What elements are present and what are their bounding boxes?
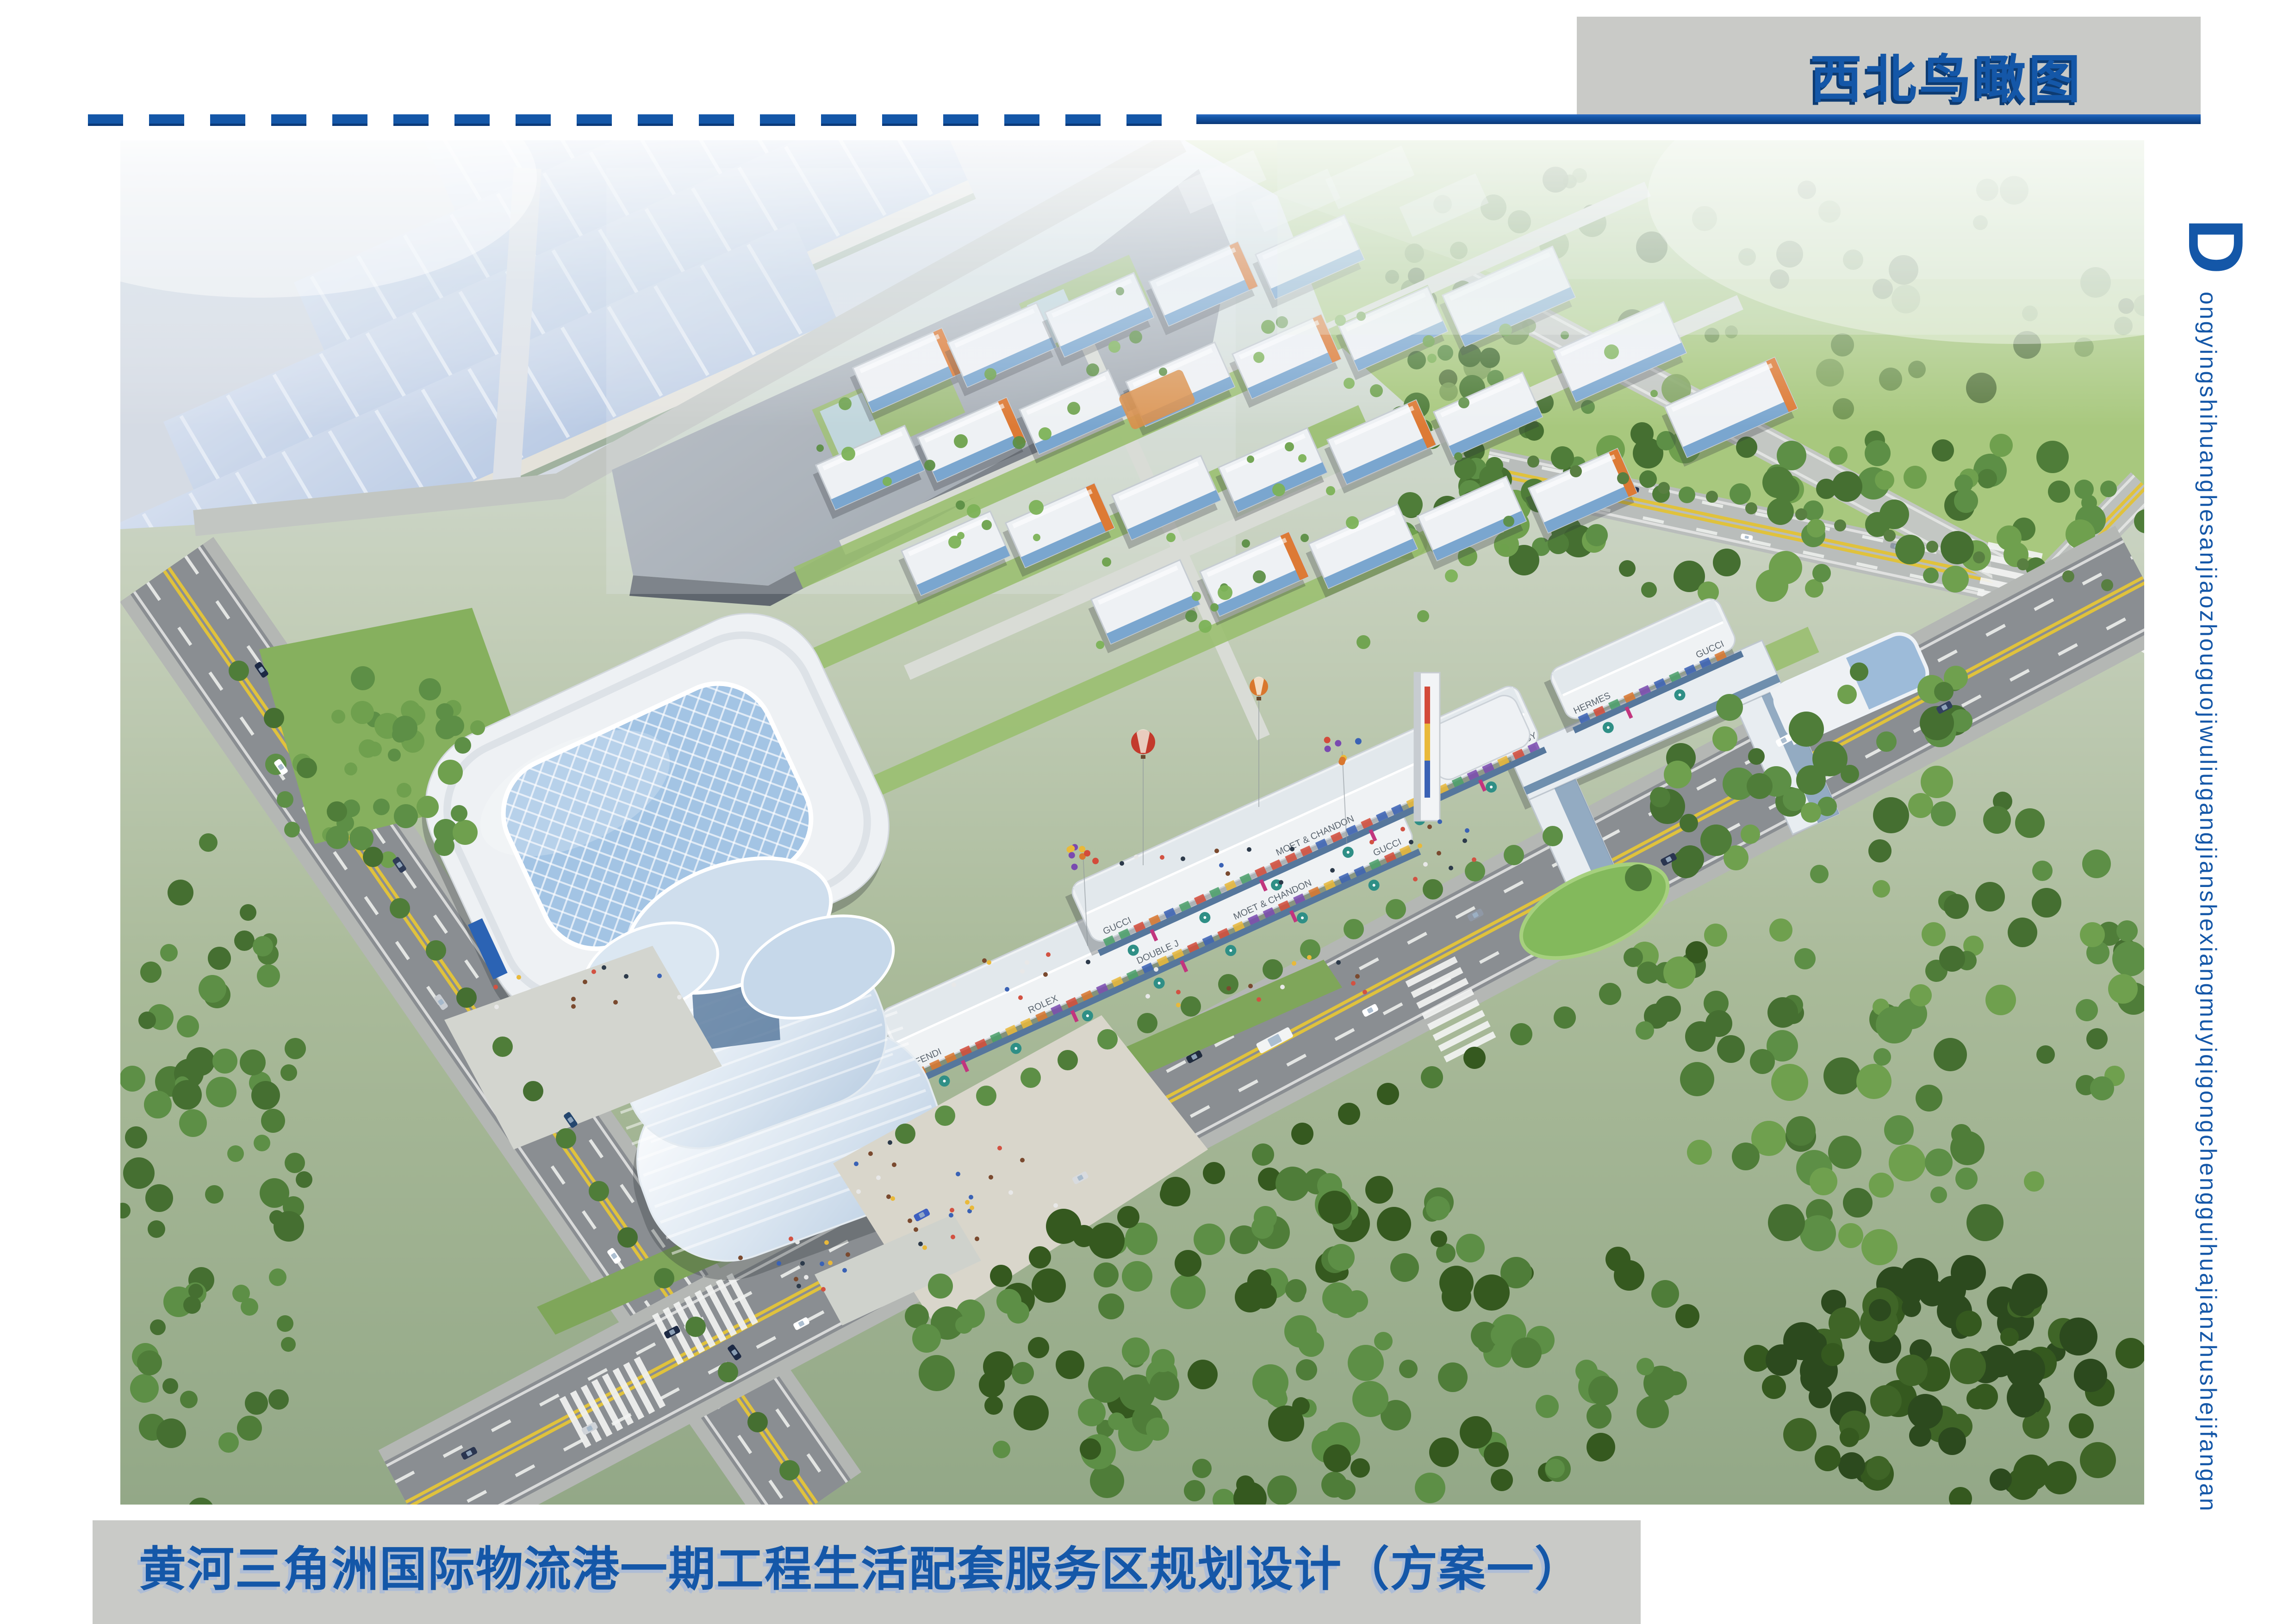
campus-trees-part [1166, 533, 1176, 542]
trees-left-edge-part [281, 1337, 296, 1352]
forest-bottom-right-part [2069, 1413, 2094, 1438]
trees-left-edge-part [251, 1081, 280, 1110]
forest-right-part [1868, 839, 1892, 862]
people-plaza-part [886, 1194, 891, 1199]
forest-bottom-right-part [1900, 1258, 1938, 1296]
forest-right-part [1700, 824, 1732, 856]
people-strip-b-part [1413, 877, 1418, 881]
forest-bottom-center-part [996, 1289, 1021, 1314]
trees-left-edge-part [206, 1077, 236, 1107]
forest-bottom-right-part [1840, 1428, 1859, 1447]
trees-west-lawn-part [349, 826, 373, 850]
forest-bottom-center-part [955, 1316, 973, 1334]
campus-trees-part [1454, 452, 1462, 461]
campus-trees-part [982, 520, 992, 530]
trees-left-edge-part [205, 1185, 224, 1204]
park-tree-band-part [1619, 560, 1636, 577]
forest-bottom-center-part [1323, 1444, 1351, 1472]
street-ne-median-part [1973, 551, 1985, 563]
forest-bottom-right-part [1869, 1299, 1891, 1321]
forest-bottom-center-part [1491, 1469, 1513, 1491]
road-main-trees-s-part [1073, 1225, 1095, 1247]
people-landmark1-part [516, 975, 521, 980]
road-main-trees-n-part [1465, 861, 1485, 881]
people-strip-a-part [1280, 985, 1285, 989]
forest-right-part [1850, 662, 1868, 681]
campus-trees-part [956, 500, 965, 510]
people-landmark1-part [583, 980, 587, 984]
forest-right-part [2032, 888, 2061, 918]
road-west-trees-part [718, 1362, 738, 1382]
park-tree-band-part [2100, 481, 2117, 497]
people-strip-a-part [1043, 972, 1048, 977]
park-tree-band-part [1730, 483, 1751, 505]
forest-bottom-center-part [1636, 1358, 1654, 1375]
people-landmark2-part [738, 1255, 743, 1260]
forest-bottom-center-part [1028, 1337, 1049, 1358]
forest-bottom-center-part [1426, 1196, 1450, 1220]
forest-bottom-right-part [1972, 1384, 1998, 1410]
forest-right-part [1861, 1229, 1898, 1265]
forest-bottom-center-part [1399, 1360, 1418, 1378]
trees-left-edge-part [123, 1157, 155, 1189]
trees-left-edge-part [168, 880, 193, 906]
forest-right-part [1712, 726, 1737, 751]
forest-bottom-center-part [1348, 1345, 1384, 1381]
campus-trees-part [957, 532, 964, 539]
forest-right-part [1916, 1085, 1942, 1112]
park-tree-band-part [1762, 467, 1794, 498]
top-solid-rule [1196, 114, 2201, 124]
road-main-trees-s-part [990, 1265, 1012, 1287]
campus-trees-part [1210, 603, 1219, 612]
trees-left-edge-part [218, 1432, 239, 1453]
forest-bottom-center-part [1651, 1280, 1679, 1308]
park-tree-band-part [2081, 495, 2097, 511]
forest-bottom-center-part [1374, 1332, 1393, 1350]
forest-right-part [1922, 922, 1946, 946]
forest-right-part [1636, 1021, 1654, 1040]
view-title: 西北鸟瞰图 [1810, 37, 2083, 112]
forest-right-part [1910, 984, 1932, 1006]
people-strip-a-part [1176, 990, 1181, 994]
view-title-banner: 西北鸟瞰图 [1577, 17, 2201, 114]
forest-bottom-right-part [1908, 1394, 1943, 1429]
forest-bottom-center-part [1474, 1274, 1510, 1311]
trees-left-edge-part [277, 1315, 293, 1332]
forest-right-part [1747, 773, 1773, 799]
street-ne-median-part [1706, 491, 1718, 503]
people-strip-b-part [1369, 840, 1374, 844]
trees-west-lawn-part [417, 796, 439, 818]
balloon-cluster-part [1092, 858, 1099, 864]
forest-bottom-center-part [1377, 1207, 1411, 1241]
forest-right-part [1800, 1215, 1836, 1251]
forest-right-part [1705, 1010, 1732, 1037]
campus-trees-part [1356, 635, 1370, 649]
campus-trees-part [883, 477, 892, 486]
forest-right-part [1823, 1057, 1860, 1094]
forest-bottom-center-part [1460, 1416, 1492, 1449]
forest-bottom-center-part [1254, 1206, 1277, 1229]
people-landmark2-part [796, 1284, 801, 1288]
forest-right-part [1908, 793, 1933, 818]
park-tree-band-part [2048, 481, 2070, 503]
trees-left-edge-part [180, 1391, 198, 1408]
forest-bottom-right-part [1815, 1445, 1841, 1471]
trees-west-lawn-part [344, 762, 357, 775]
forest-bottom-right-part [1902, 1298, 1921, 1317]
people-strip-a-part [1307, 955, 1312, 960]
forest-bottom-right-part [2080, 1442, 2116, 1478]
trees-left-edge-part [199, 975, 226, 1003]
park-tree-band-part [1865, 440, 1891, 466]
people-plaza-part [1020, 1158, 1025, 1162]
forest-right-part [1769, 918, 1792, 942]
people-strip-b-part [1214, 849, 1219, 853]
people-strip-b-part [1226, 871, 1230, 876]
forest-right-part [1921, 766, 1953, 798]
people-plaza-part [856, 1189, 861, 1194]
park-tree-band-part [1990, 434, 2013, 457]
people-landmark1-part [602, 965, 606, 970]
campus-trees-part [1500, 544, 1509, 553]
park-tree-band-part [1829, 446, 1848, 465]
trees-left-edge-part [240, 904, 256, 921]
people-strip-b-part [1472, 857, 1476, 862]
forest-bottom-center-part [1328, 1244, 1355, 1271]
people-plaza-part [868, 1151, 873, 1156]
forest-bottom-center-part [1146, 1418, 1169, 1441]
campus-trees-part [1247, 456, 1254, 463]
campus-trees-part [816, 444, 824, 452]
trees-left-edge-part [144, 1091, 172, 1118]
campus-trees-part [1272, 483, 1285, 496]
people-tower-part [1437, 819, 1442, 824]
park-tree-band-part [1807, 519, 1825, 537]
people-landmark1-part [624, 974, 628, 979]
forest-bottom-right-part [1938, 1427, 1966, 1455]
forest-right-part [1837, 685, 1857, 704]
trees-west-lawn-part [351, 701, 374, 724]
forest-bottom-center-part [1184, 1480, 1205, 1501]
campus-trees-part [1199, 620, 1212, 633]
forest-bottom-center-part [1335, 1480, 1356, 1500]
forest-bottom-center-part [1285, 1279, 1307, 1300]
road-main-trees-n-part [1386, 899, 1406, 919]
forest-bottom-center-part [1014, 1395, 1049, 1430]
trees-left-edge-part [253, 936, 273, 956]
forest-right-part [2108, 974, 2138, 1004]
road-main-trees-n-part [1020, 1068, 1041, 1088]
forest-right-part [1889, 1144, 1926, 1181]
road-main-trees-s-part [1029, 1246, 1051, 1268]
forest-bottom-center-part [1012, 1362, 1034, 1384]
road-main-trees-n-part [1181, 996, 1201, 1017]
trees-west-lawn-part [392, 727, 408, 743]
park-tree-band-part [1941, 531, 1974, 564]
campus-trees-part [1285, 442, 1294, 451]
campus-trees-part [1218, 585, 1232, 600]
trees-left-edge-part [254, 1135, 270, 1151]
people-strip-b-part [1330, 868, 1335, 873]
campus-trees-part [1417, 610, 1429, 622]
road-main-trees-s-part [1291, 1123, 1313, 1145]
forest-bottom-center-part [1188, 1363, 1210, 1386]
campus-trees-part [1503, 516, 1514, 527]
forest-bottom-center-part [1438, 1362, 1468, 1392]
sign-tower [1414, 673, 1440, 821]
forest-right-part [1717, 1035, 1745, 1063]
road-west-trees-part [747, 1412, 768, 1432]
road-main-trees-s-part [1252, 1143, 1274, 1166]
forest-bottom-center-part [1484, 1442, 1509, 1467]
trees-left-edge-part [120, 1066, 145, 1092]
people-strip-a-part [1336, 960, 1341, 965]
trees-left-edge-part [130, 1374, 159, 1403]
street-ne-median-part [1617, 472, 1629, 484]
forest-bottom-center-part [1511, 1337, 1542, 1368]
forest-right-part [1741, 824, 1760, 844]
people-landmark1-part [613, 1000, 618, 1005]
forest-right-part [1672, 849, 1700, 878]
street-ne-median-part [1926, 541, 1938, 553]
aerial-rendering-svg: FENDIROLEXDOUBLE JMOET & CHANDONGUCCIGUC… [120, 140, 2144, 1505]
balloon-cluster-part [1355, 738, 1362, 744]
road-main-trees-s-part [1203, 1162, 1225, 1184]
balloon-cluster-part [1079, 846, 1085, 852]
park-tree-band-w-part [1551, 446, 1574, 469]
people-plaza-part [949, 1213, 953, 1218]
forest-right-part [1771, 1064, 1808, 1101]
forest-right-part [1939, 946, 1965, 972]
people-landmark2-part [842, 1268, 847, 1273]
road-west-trees-part [779, 1460, 800, 1480]
people-strip-b-part [1160, 855, 1164, 860]
street-ne-median-part [1570, 465, 1582, 477]
road-main-trees-s-part [1510, 1023, 1532, 1045]
park-tree-band-part [1923, 568, 1939, 583]
people-landmark1-part [677, 995, 682, 999]
people-landmark1-part [657, 974, 662, 978]
forest-right-part [1975, 882, 2005, 912]
road-main-trees-n-part [976, 1086, 996, 1106]
trees-left-edge-part [261, 1109, 285, 1133]
people-strip-a-part [1248, 984, 1253, 988]
forest-bottom-center-part [1098, 1293, 1124, 1319]
people-strip-a-part [1046, 952, 1051, 957]
forest-right-part [1748, 748, 1765, 765]
campus-trees-part [967, 504, 981, 518]
people-landmark2-part [820, 1262, 824, 1266]
street-ne-median-part [1834, 519, 1846, 531]
side-caption-initial: D [2179, 208, 2253, 284]
trees-left-edge-part [245, 1392, 268, 1415]
forest-bottom-center-part [1415, 1473, 1445, 1503]
people-strip-a-part [1005, 987, 1009, 992]
forest-right-part [1920, 706, 1954, 740]
park-tree-band-part [1812, 564, 1831, 582]
forest-right-part [1838, 1223, 1863, 1248]
road-main-trees-n-part [1504, 845, 1524, 865]
trees-left-edge-part [188, 1284, 203, 1299]
forest-right-part [1873, 1048, 1891, 1066]
top-dashed-rule-shadow [88, 124, 1169, 126]
trees-west-lawn-part [454, 737, 471, 754]
forest-bottom-center-part [983, 1351, 1014, 1382]
road-west-trees-part [363, 847, 383, 867]
trees-left-edge-part [208, 947, 231, 970]
campus-trees-part [1185, 610, 1197, 622]
campus-trees-part [1242, 539, 1250, 548]
balloon-cluster-part [1084, 850, 1090, 856]
forest-bottom-right-part [1896, 1355, 1928, 1386]
balloon-cluster-part [1069, 852, 1075, 858]
forest-bottom-right-part [2006, 1350, 2045, 1389]
trees-left-edge-part [140, 962, 162, 983]
street-ne-median-part [1795, 508, 1807, 520]
road-west-trees-part [617, 1227, 638, 1248]
park-tree-band-w-part [1639, 470, 1657, 488]
forest-bottom-right-part [1829, 1307, 1860, 1339]
people-landmark2-part [794, 1277, 798, 1281]
forest-right-part [2036, 1045, 2055, 1064]
forest-right-part [1768, 1204, 1805, 1241]
forest-right-part [1716, 694, 1743, 721]
people-strip-a-part [1363, 990, 1367, 994]
forest-bottom-center-part [928, 1274, 953, 1299]
road-west-trees-part [390, 898, 410, 918]
people-strip-a-part [1355, 974, 1360, 979]
people-strip-b-part [1181, 856, 1185, 861]
forest-bottom-center-part [1247, 1269, 1271, 1293]
people-plaza-part [997, 1146, 1002, 1150]
forest-right-part [2008, 918, 2037, 947]
trees-west-lawn-part [359, 739, 377, 758]
trees-west-lawn-part [419, 678, 441, 700]
people-strip-b-part [1290, 847, 1294, 851]
trees-left-edge-part [160, 944, 178, 962]
trees-left-edge-part [162, 1378, 178, 1394]
forest-right-part [1983, 806, 2011, 834]
campus-trees-part [1102, 557, 1111, 567]
people-strip-a-part [1145, 994, 1150, 999]
forest-right-part [1732, 1143, 1760, 1170]
road-main-trees-s-part [1686, 941, 1708, 963]
forest-right-part [1925, 1149, 1953, 1176]
forest-right-part [1955, 1168, 1978, 1190]
forest-right-part [1794, 948, 1816, 969]
road-west-trees-part [229, 661, 249, 681]
people-strip-a-part [1257, 997, 1261, 1002]
road-west-trees-part [685, 1317, 706, 1337]
trees-left-edge-part [148, 1220, 165, 1238]
street-ne-median-part [1527, 456, 1539, 468]
trees-west-lawn-part [351, 666, 375, 690]
forest-bottom-center-part [1587, 1433, 1615, 1462]
forest-bottom-right-part [1762, 1375, 1786, 1399]
campus-trees-part [1096, 641, 1104, 649]
forest-bottom-center-part [1350, 1458, 1370, 1478]
people-strip-a-part [1025, 960, 1029, 965]
trees-west-lawn-part [331, 710, 345, 724]
road-main-trees-n-part [1137, 1013, 1157, 1033]
top-dashed-rule [88, 114, 1169, 124]
forest-bottom-right-part [2060, 1318, 2097, 1355]
people-tower-part [1418, 843, 1422, 848]
park-tree-band-part [1997, 525, 2022, 550]
road-west-trees-part [556, 1128, 576, 1149]
street-ne-median-part [2062, 570, 2074, 582]
forest-bottom-center-part [1614, 1260, 1644, 1291]
aerial-rendering: FENDIROLEXDOUBLE JMOET & CHANDONGUCCIGUC… [120, 140, 2144, 1505]
forest-right-part [1750, 1049, 1775, 1074]
road-main-trees-n-part [1218, 974, 1238, 994]
campus-trees-part [1029, 500, 1044, 515]
forest-bottom-center-part [1322, 1282, 1354, 1314]
people-landmark2-part [795, 1240, 800, 1244]
people-plaza-part [965, 1200, 970, 1205]
forest-right-part [1624, 948, 1643, 967]
forest-right-part [1680, 814, 1698, 832]
road-west-trees-part [456, 987, 477, 1008]
trees-west-lawn-part [451, 805, 467, 822]
people-strip-b-part [1134, 855, 1139, 859]
atmosphere-haze [120, 140, 2144, 427]
park-tree-band-part [1904, 466, 1927, 489]
street-ne-median-part [1745, 502, 1757, 514]
people-plaza-part [1008, 1190, 1013, 1195]
road-main-trees-s-part [1637, 962, 1659, 984]
trees-west-lawn-part [470, 720, 485, 735]
trees-left-edge-part [177, 1015, 199, 1037]
people-strip-b-part [1449, 866, 1453, 870]
forest-bottom-center-part [1088, 1367, 1124, 1403]
road-main-trees-n-part [1543, 826, 1563, 846]
trees-west-lawn-part [284, 822, 300, 837]
people-strip-a-part [952, 982, 956, 987]
trees-left-edge-part [274, 1211, 304, 1242]
forest-bottom-center-part [1284, 1315, 1317, 1348]
forest-bottom-center-part [1491, 1323, 1515, 1347]
campus-trees-part [1326, 486, 1335, 495]
forest-bottom-right-part [1838, 1452, 1865, 1479]
road-main-trees-s-part [1554, 1006, 1576, 1029]
forest-right-part [1876, 731, 1897, 752]
people-plaza-part [922, 1245, 927, 1250]
people-plaza-part [892, 1162, 896, 1167]
forest-right-part [1704, 924, 1727, 947]
people-strip-a-part [982, 958, 987, 963]
forest-right-part [1873, 880, 1890, 898]
forest-bottom-center-part [1429, 1437, 1459, 1467]
forest-bottom-right-part [2074, 1359, 2107, 1392]
sign-tower-part [1414, 673, 1421, 821]
people-plaza-part [914, 1227, 918, 1232]
forest-bottom-center-part [1056, 1350, 1084, 1379]
forest-bottom-right-part [1870, 1385, 1902, 1417]
forest-bottom-center-part [1151, 1349, 1175, 1372]
forest-right-part [1801, 802, 1821, 823]
forest-bottom-center-part [1588, 1376, 1618, 1405]
campus-trees-part [1445, 569, 1458, 582]
forest-bottom-right-part [1909, 1424, 1931, 1447]
trees-west-lawn-part [453, 820, 478, 845]
trees-left-edge-part [268, 1389, 289, 1410]
forest-right-part [1810, 865, 1829, 883]
people-plaza-part [975, 1237, 979, 1241]
forest-right-part [1944, 894, 1969, 919]
